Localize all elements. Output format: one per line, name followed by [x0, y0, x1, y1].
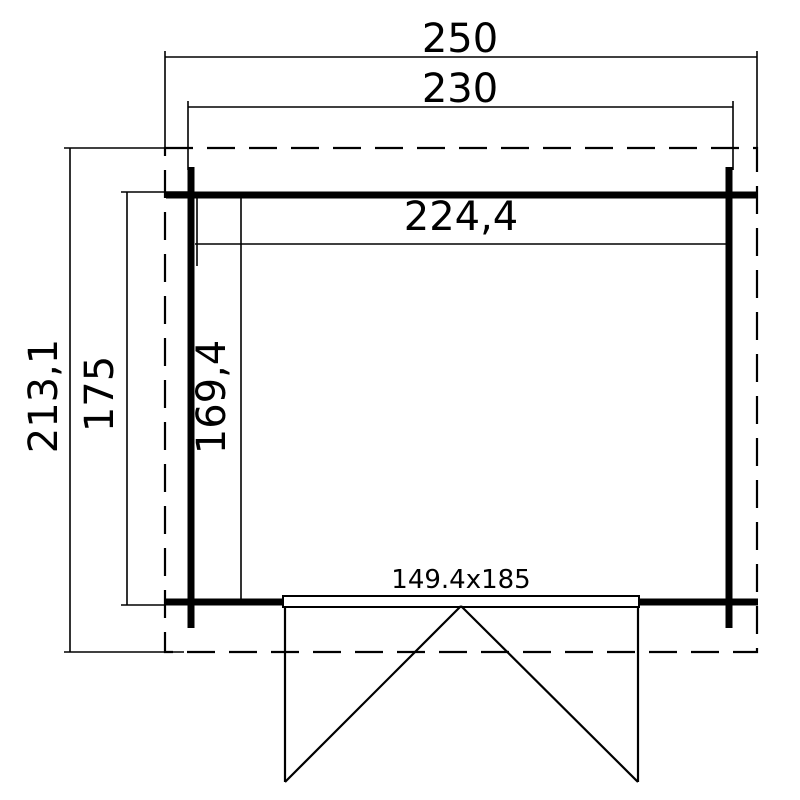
dimension-label-wall-width: 230 — [422, 69, 498, 109]
dimension-label-overall-depth: 213,1 — [24, 339, 64, 454]
dimension-label-wall-depth: 175 — [80, 356, 120, 432]
dimension-label-interior-width: 224,4 — [404, 197, 519, 237]
dimension-label-door-size: 149.4x185 — [391, 567, 530, 593]
door-sill — [283, 596, 639, 607]
dimension-label-interior-depth: 169,4 — [192, 340, 232, 455]
door-swing-right — [461, 606, 638, 782]
floor-plan: 250 230 224,4 213,1 175 169,4 149.4x185 — [0, 0, 800, 800]
door-swing-left — [285, 606, 461, 782]
interior-dimension-lines — [195, 196, 726, 601]
dimension-label-overall-width: 250 — [422, 19, 498, 59]
wall-depth-dimension — [121, 192, 190, 605]
door — [283, 596, 639, 782]
